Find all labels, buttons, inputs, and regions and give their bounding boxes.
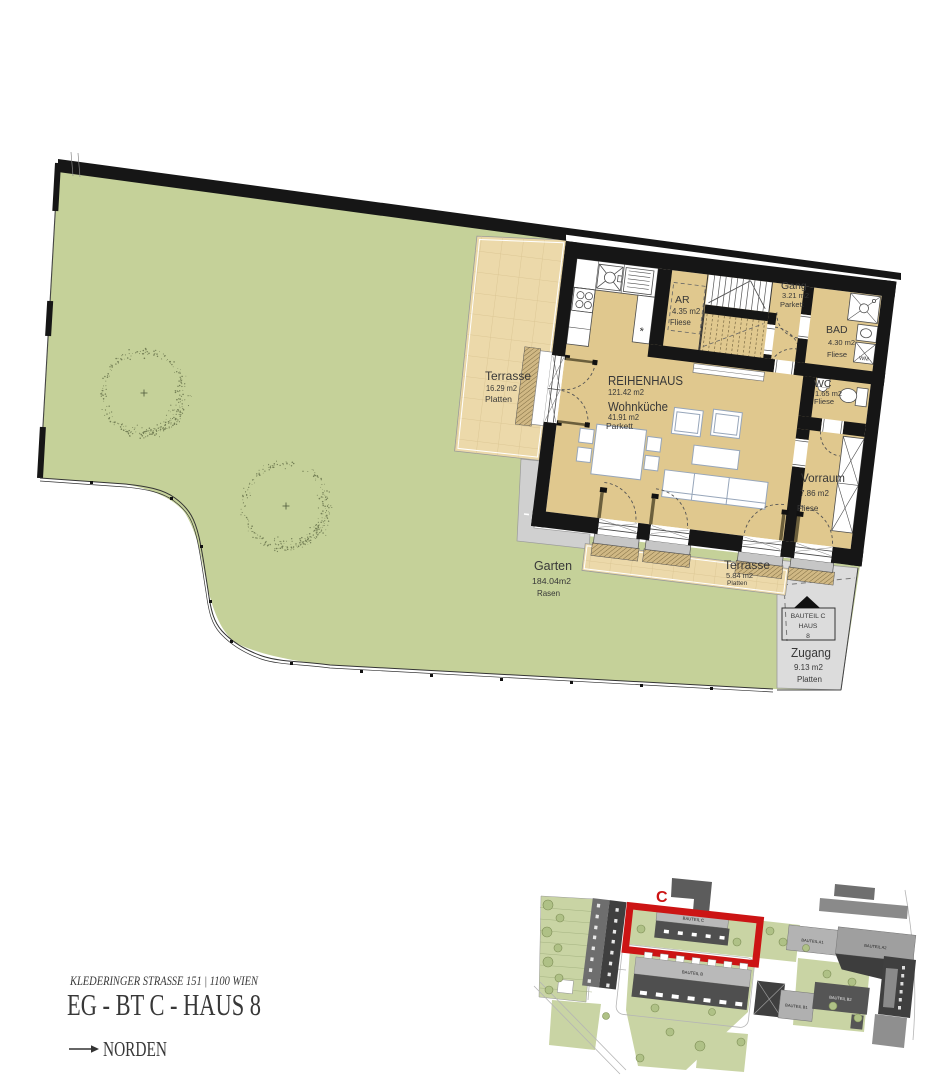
svg-text:Fliese: Fliese [797,504,819,513]
svg-text:Terrasse: Terrasse [485,369,531,383]
svg-text:4.30 m2: 4.30 m2 [828,338,855,347]
svg-text:KLEDERINGER STRASSE 151 | 1100: KLEDERINGER STRASSE 151 | 1100 WIEN [69,974,258,988]
svg-text:5.84 m2: 5.84 m2 [726,571,753,580]
svg-text:7.86 m2: 7.86 m2 [800,489,829,498]
svg-text:Parkett: Parkett [780,300,805,309]
svg-text:Fliese: Fliese [814,397,834,406]
svg-text:9.13 m2: 9.13 m2 [794,663,823,672]
svg-text:8: 8 [806,633,810,640]
svg-text:121.42 m2: 121.42 m2 [608,387,644,397]
svg-text:Platten: Platten [485,394,512,404]
svg-text:Terrasse: Terrasse [724,558,770,572]
svg-text:AR: AR [675,294,690,306]
svg-text:184.04m2: 184.04m2 [532,576,571,586]
svg-text:Zugang: Zugang [791,646,831,660]
svg-text:C: C [656,889,668,906]
svg-text:Fliese: Fliese [827,350,847,359]
svg-text:EG - BT C - HAUS 8: EG - BT C - HAUS 8 [67,987,261,1022]
svg-text:3.21 m2: 3.21 m2 [782,291,809,300]
svg-text:NORDEN: NORDEN [103,1037,167,1061]
svg-text:BAUTEIL C: BAUTEIL C [791,613,826,620]
svg-text:WM: WM [859,356,870,363]
svg-text:REIHENHAUS: REIHENHAUS [608,374,683,388]
svg-text:Platten: Platten [727,580,748,587]
svg-text:4.35 m2: 4.35 m2 [672,307,700,316]
svg-text:Parkett: Parkett [606,421,634,431]
svg-text:Platten: Platten [797,675,822,684]
svg-text:HAUS: HAUS [799,623,818,630]
svg-text:Garten: Garten [534,559,572,573]
svg-text:BAD: BAD [826,324,848,336]
svg-text:Vorraum: Vorraum [801,471,845,485]
svg-text:Fliese: Fliese [670,318,691,327]
svg-text:16.29 m2: 16.29 m2 [486,383,517,393]
svg-text:Rasen: Rasen [537,588,560,598]
